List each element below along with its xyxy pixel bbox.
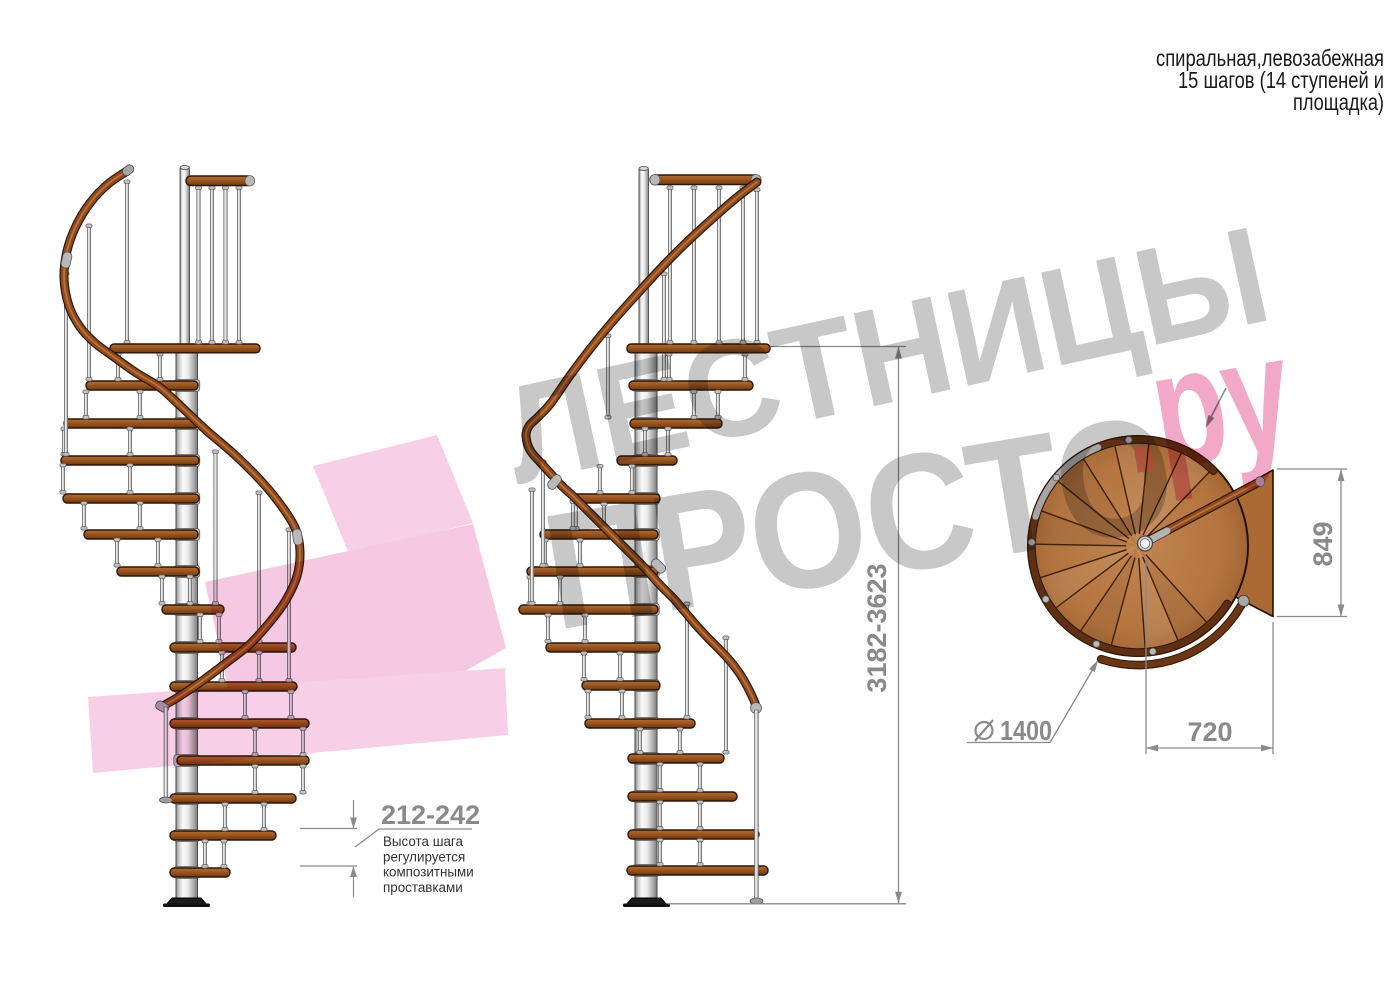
svg-text:Высота шагарегулируетсякомпози: Высота шагарегулируетсякомпозитнымипрост…: [383, 834, 474, 895]
svg-text:720: 720: [1187, 717, 1232, 747]
svg-text:.ру: .ру: [1105, 299, 1303, 509]
svg-text:849: 849: [1308, 521, 1338, 566]
svg-text:1400: 1400: [1000, 715, 1052, 746]
svg-text:212-242: 212-242: [381, 800, 480, 830]
svg-text:площадка): площадка): [1293, 89, 1384, 115]
